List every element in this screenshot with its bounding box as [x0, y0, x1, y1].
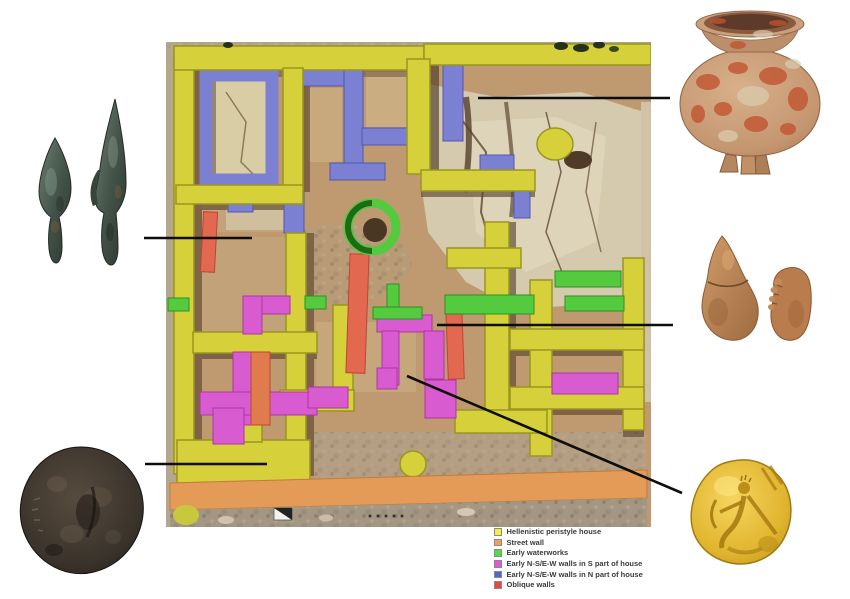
legend-swatch-blue	[494, 571, 502, 579]
legend-label: Early waterworks	[507, 549, 569, 557]
site-orthophoto	[166, 42, 651, 527]
legend: Hellenistic peristyle house Street wall …	[494, 528, 643, 592]
legend-item: Hellenistic peristyle house	[494, 528, 643, 536]
legend-item: Early N-S/E-W walls in S part of house	[494, 560, 643, 568]
artifact-gold-coin-photo	[684, 456, 796, 570]
bronze-arrowhead-left	[39, 138, 71, 263]
legend-item: Street wall	[494, 539, 643, 547]
bronze-arrowhead-right	[91, 99, 126, 265]
legend-swatch-green	[494, 549, 502, 557]
legend-swatch-magenta	[494, 560, 502, 568]
legend-label: Street wall	[507, 539, 545, 547]
legend-label: Early N-S/E-W walls in S part of house	[507, 560, 643, 568]
legend-item: Early N-S/E-W walls in N part of house	[494, 571, 643, 579]
legend-swatch-red	[494, 581, 502, 589]
figure-canvas: Hellenistic peristyle house Street wall …	[0, 0, 850, 599]
gold-coin	[691, 460, 791, 564]
figurine-fragment-left	[702, 236, 758, 340]
globular-pot	[680, 11, 820, 174]
legend-item: Early waterworks	[494, 549, 643, 557]
legend-swatch-orange	[494, 539, 502, 547]
legend-label: Oblique walls	[507, 581, 555, 589]
bronze-coin	[20, 447, 143, 574]
legend-label: Early N-S/E-W walls in N part of house	[507, 571, 643, 579]
artifact-bronze-coin-photo	[12, 442, 150, 580]
artifact-figurines-photo	[686, 230, 828, 354]
legend-swatch-yellow	[494, 528, 502, 536]
site-plan-svg	[166, 42, 651, 527]
legend-item: Oblique walls	[494, 581, 643, 589]
artifact-pot-photo	[668, 4, 832, 176]
artifact-arrowheads-photo	[18, 92, 140, 274]
legend-label: Hellenistic peristyle house	[507, 528, 602, 536]
figurine-fragment-right	[768, 268, 811, 341]
